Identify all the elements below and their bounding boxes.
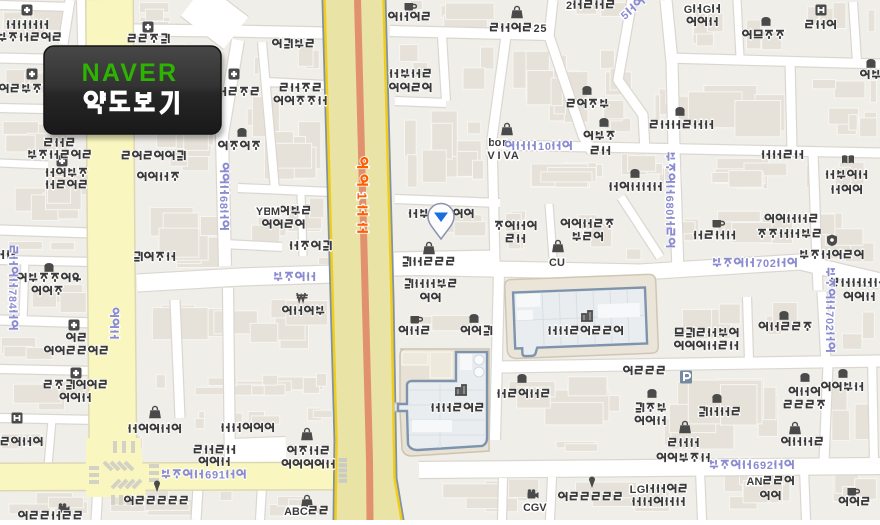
svg-text:V: V bbox=[539, 502, 547, 514]
svg-text:1: 1 bbox=[219, 470, 225, 482]
svg-text:2: 2 bbox=[534, 23, 540, 35]
svg-text:2: 2 bbox=[770, 258, 776, 270]
svg-text:o: o bbox=[495, 137, 502, 149]
svg-text:6: 6 bbox=[663, 196, 675, 202]
svg-text:N: N bbox=[755, 476, 763, 488]
svg-text:G: G bbox=[637, 484, 646, 496]
svg-text:9: 9 bbox=[212, 470, 218, 482]
svg-text:5: 5 bbox=[540, 23, 546, 35]
svg-text:0: 0 bbox=[763, 258, 769, 270]
svg-text:M: M bbox=[271, 206, 280, 218]
svg-text:I: I bbox=[497, 150, 500, 162]
svg-text:0: 0 bbox=[823, 318, 835, 324]
svg-text:8: 8 bbox=[6, 296, 18, 302]
svg-text:C: C bbox=[300, 506, 308, 518]
svg-text:6: 6 bbox=[205, 470, 211, 482]
svg-text:7: 7 bbox=[756, 258, 762, 270]
svg-text:B: B bbox=[292, 506, 300, 518]
svg-text:8: 8 bbox=[217, 203, 229, 209]
svg-text:A: A bbox=[284, 506, 292, 518]
svg-text:2: 2 bbox=[823, 325, 835, 331]
svg-text:G: G bbox=[684, 4, 693, 16]
svg-text:4: 4 bbox=[6, 303, 18, 310]
svg-text:1: 1 bbox=[538, 141, 544, 153]
svg-text:6: 6 bbox=[753, 460, 759, 472]
svg-text:2: 2 bbox=[767, 460, 773, 472]
svg-text:A: A bbox=[511, 150, 519, 162]
svg-text:U: U bbox=[557, 257, 565, 269]
svg-text:C: C bbox=[549, 257, 557, 269]
svg-text:A: A bbox=[747, 476, 755, 488]
svg-text:9: 9 bbox=[760, 460, 766, 472]
svg-text:0: 0 bbox=[545, 141, 551, 153]
svg-text:7: 7 bbox=[823, 311, 835, 317]
svg-text:L: L bbox=[630, 484, 637, 496]
svg-text:6: 6 bbox=[217, 196, 229, 202]
svg-text:8: 8 bbox=[663, 202, 675, 208]
svg-text:2: 2 bbox=[566, 0, 572, 12]
svg-text:V: V bbox=[487, 150, 495, 162]
svg-text:0: 0 bbox=[663, 209, 675, 215]
svg-text:7: 7 bbox=[6, 289, 18, 295]
svg-text:1: 1 bbox=[354, 192, 369, 199]
svg-text:G: G bbox=[703, 4, 712, 16]
svg-text:G: G bbox=[531, 502, 540, 514]
svg-text:NAVER: NAVER bbox=[82, 59, 179, 87]
